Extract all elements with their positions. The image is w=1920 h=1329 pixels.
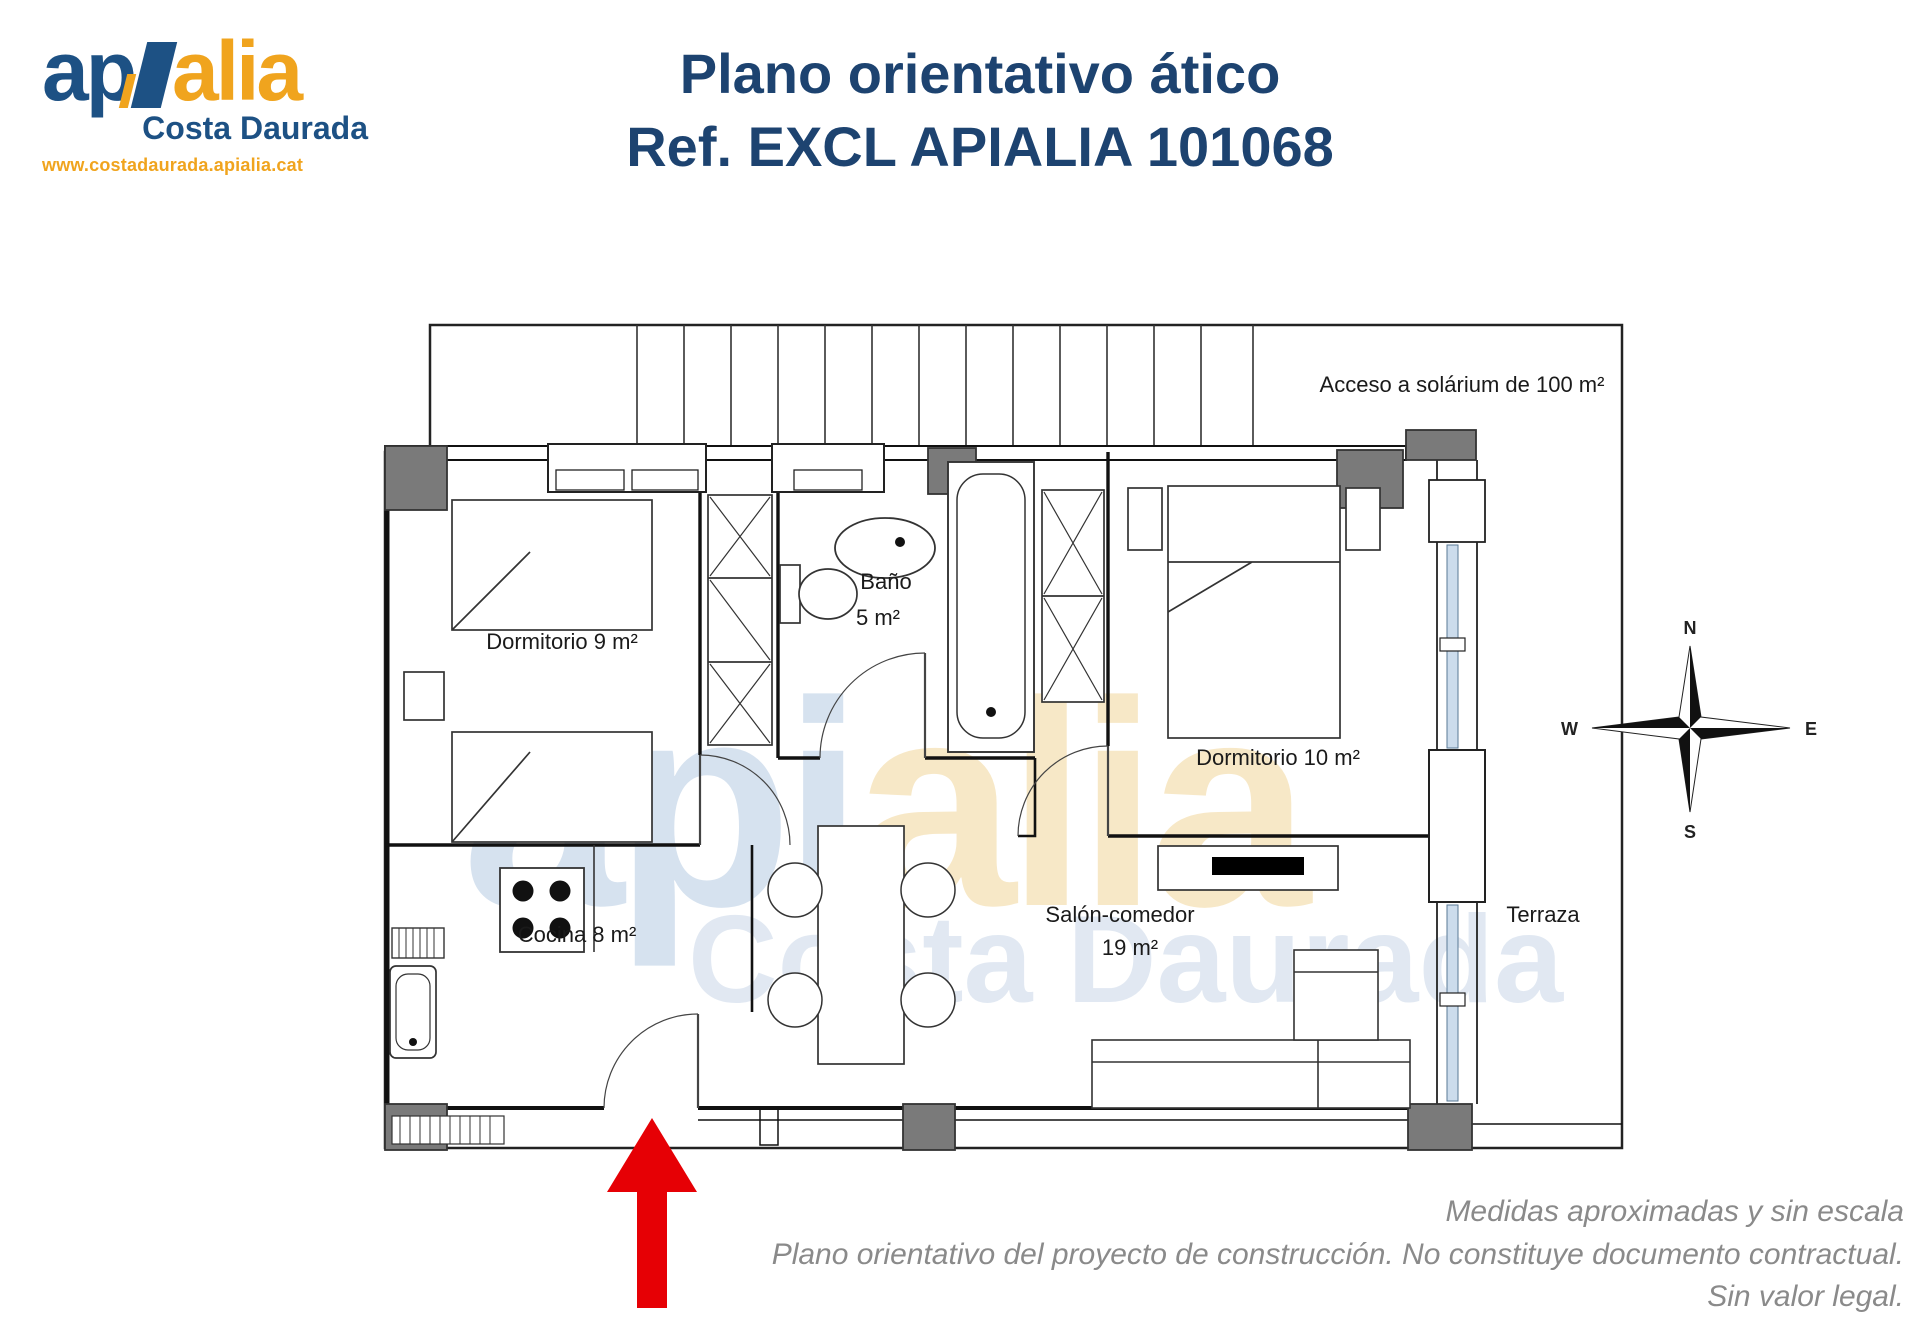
page: ap alia Costa Daurada www.costadaurada.a…: [0, 0, 1920, 1329]
wardrobe: [708, 495, 772, 745]
terrace-window-wall: [1429, 460, 1485, 1104]
label-dormitorio9: Dormitorio 9 m²: [486, 629, 638, 654]
top-exterior-wall: [385, 446, 1406, 460]
chair: [768, 973, 822, 1027]
entrance-door-arc: [604, 1014, 698, 1108]
wall-stub-right: [1346, 488, 1380, 550]
label-bano-area: 5 m²: [856, 605, 900, 630]
single-bed-1: [452, 500, 652, 630]
compass-rose-icon: N E S W: [1561, 618, 1817, 842]
hall-closet: [1042, 490, 1104, 702]
disclaimer-line-3: Sin valor legal.: [772, 1276, 1904, 1319]
dish-rack: [392, 928, 444, 958]
disclaimer: Medidas aproximadas y sin escala Plano o…: [772, 1191, 1904, 1319]
nightstand: [404, 672, 444, 720]
label-dormitorio10: Dormitorio 10 m²: [1196, 745, 1360, 770]
tv-icon: [1212, 857, 1304, 875]
wall-stub-left: [1128, 488, 1162, 550]
entry-step-hatch: [392, 1116, 504, 1144]
compass-east-label: E: [1805, 719, 1817, 739]
washbasin-drain: [895, 537, 905, 547]
dining-table: [818, 826, 904, 1064]
label-cocina: Cocina 8 m²: [518, 922, 637, 947]
bathtub: [957, 474, 1025, 738]
single-bed-2: [452, 732, 652, 842]
chair: [901, 973, 955, 1027]
label-terraza: Terraza: [1506, 902, 1580, 927]
disclaimer-line-1: Medidas aproximadas y sin escala: [772, 1191, 1904, 1234]
chair: [901, 863, 955, 917]
label-solarium: Acceso a solárium de 100 m²: [1320, 372, 1605, 397]
roof-hatch-strip: [637, 325, 1253, 448]
chair: [768, 863, 822, 917]
toilet-bowl: [799, 569, 857, 619]
bathtub-drain: [986, 707, 996, 717]
label-salon-area: 19 m²: [1102, 935, 1158, 960]
compass-west-label: W: [1561, 719, 1578, 739]
compass-north-label: N: [1684, 618, 1697, 638]
double-bed: [1168, 486, 1340, 738]
compass-south-label: S: [1684, 822, 1696, 842]
toilet-tank: [780, 565, 800, 623]
floor-plan: apialia Costa Daurada: [0, 0, 1920, 1329]
label-salon: Salón-comedor: [1045, 902, 1194, 927]
label-bano: Baño: [860, 569, 911, 594]
sofa-chaise: [1294, 950, 1378, 1040]
disclaimer-line-2: Plano orientativo del proyecto de constr…: [772, 1234, 1904, 1277]
entrance-arrow: [607, 1118, 697, 1308]
